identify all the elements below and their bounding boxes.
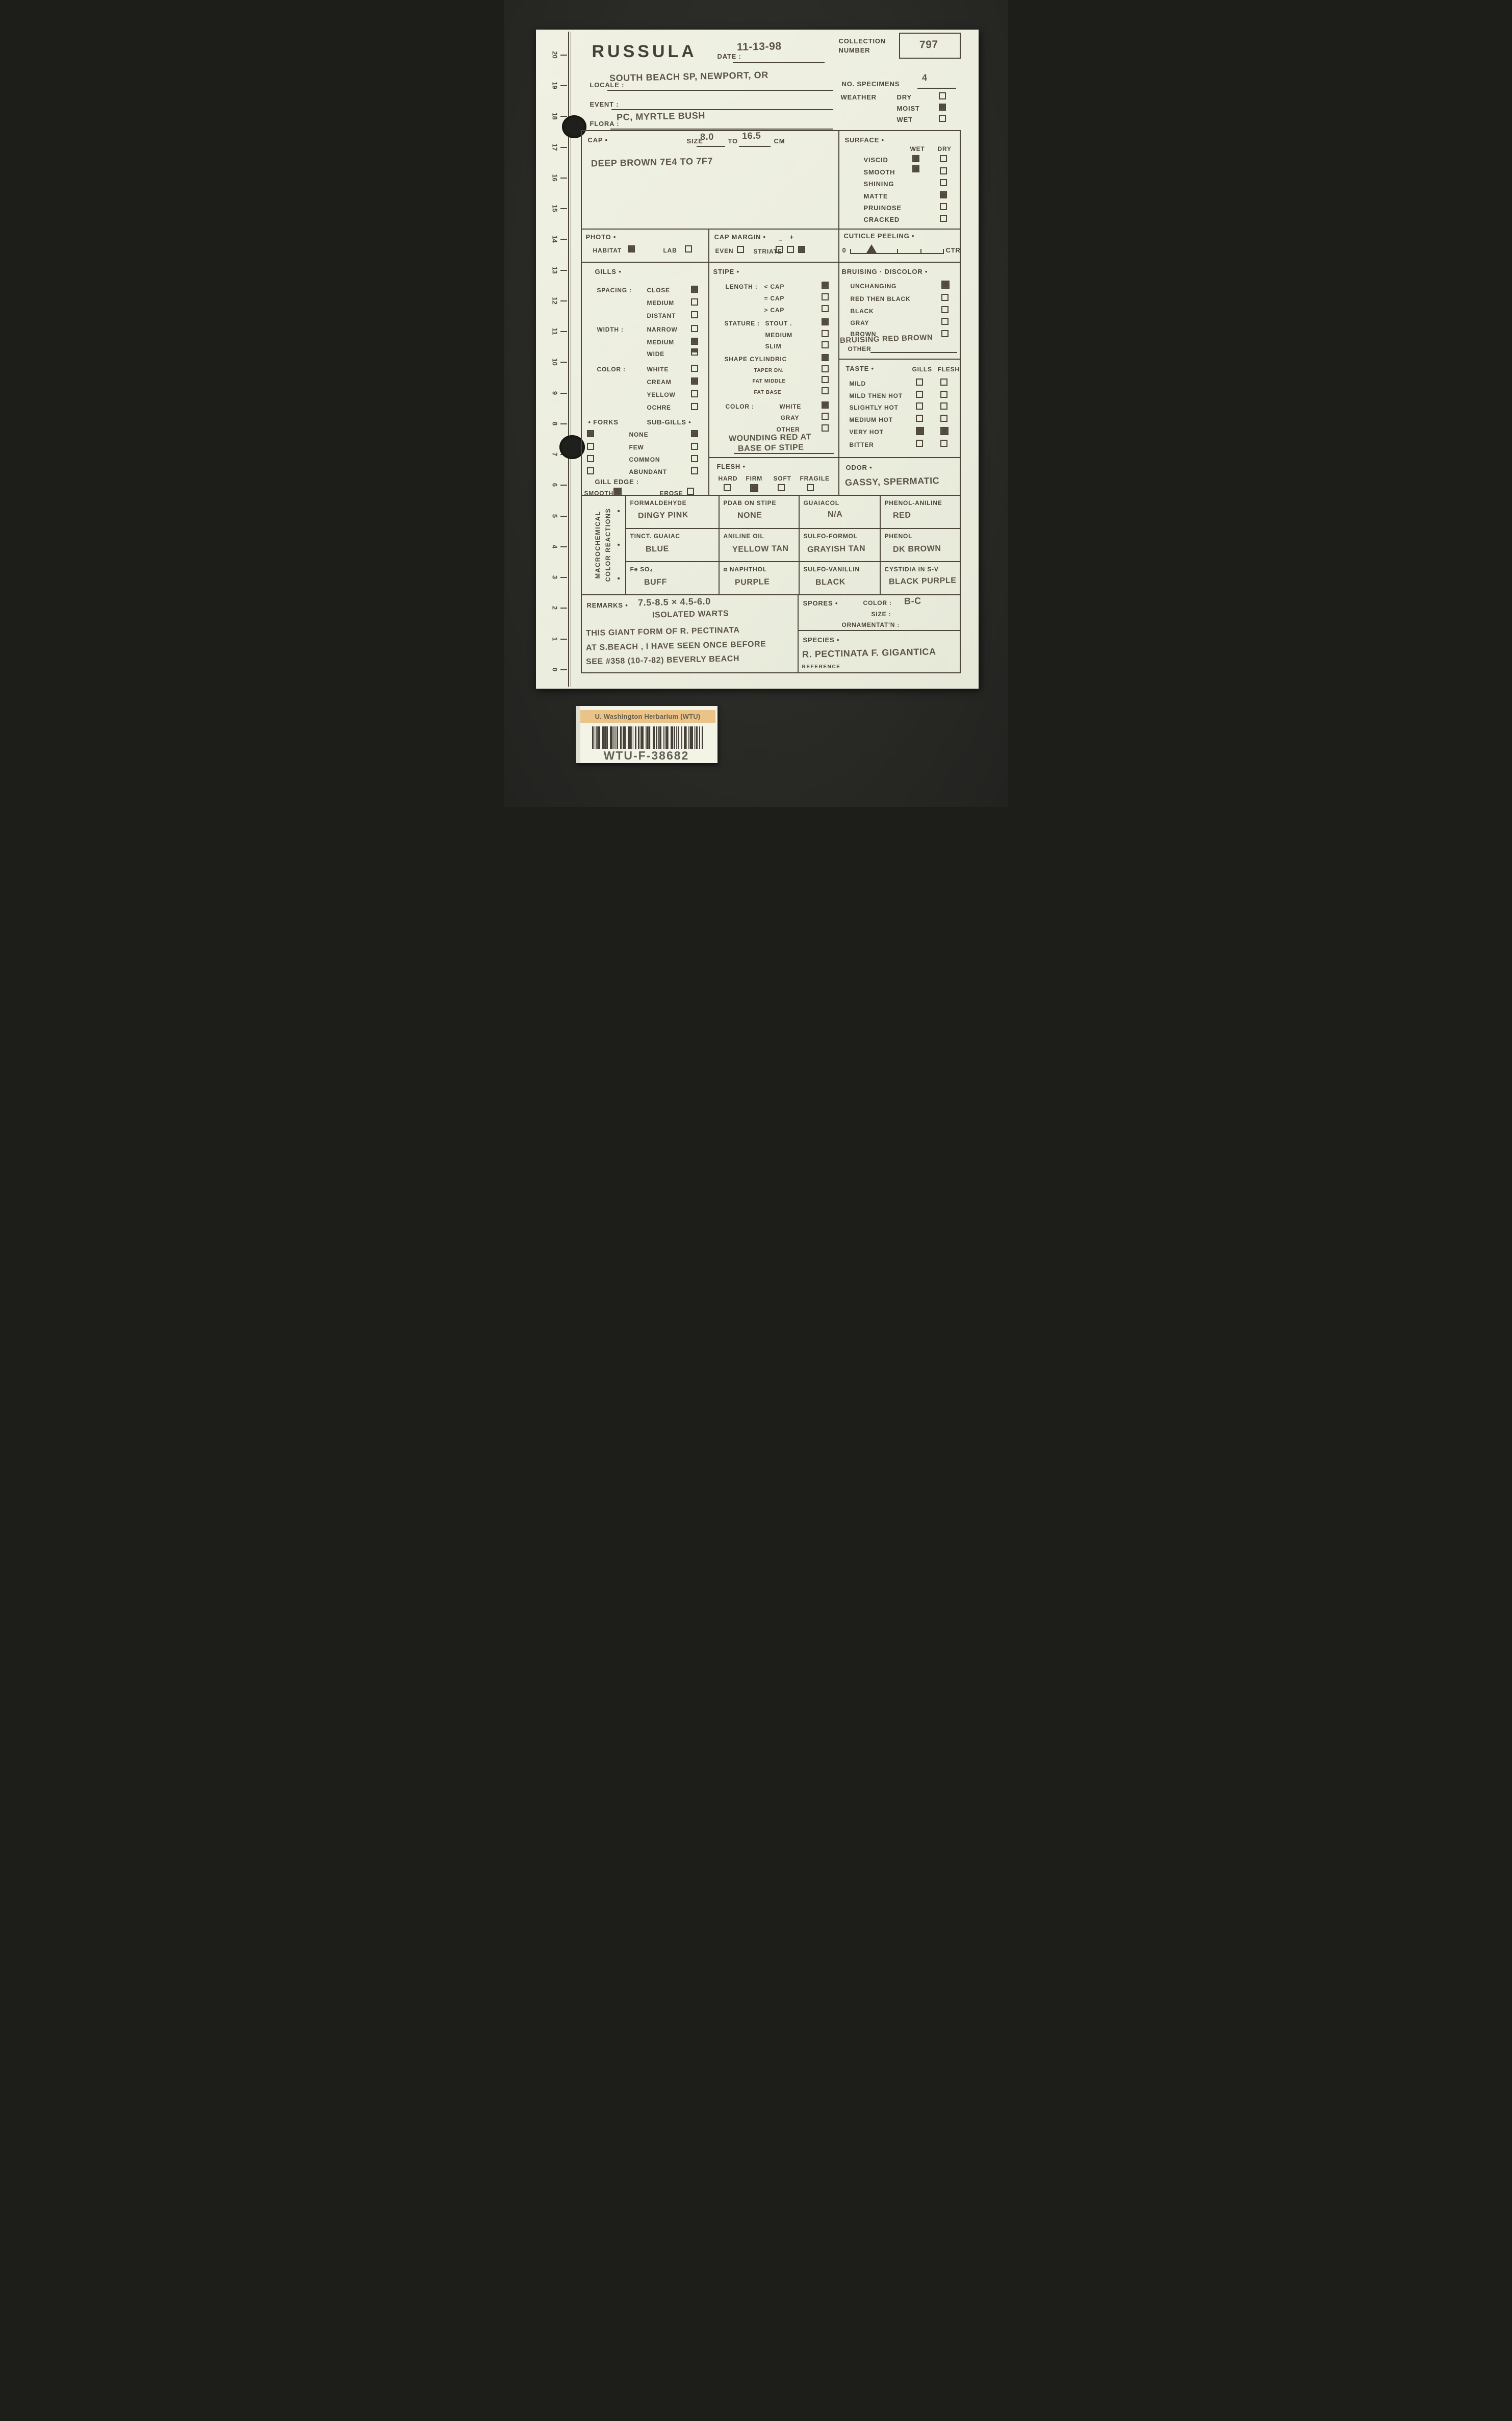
- reaction-test-label: TINCT. GUAIAC: [630, 533, 680, 540]
- gills-color-option: YELLOW: [647, 392, 676, 399]
- photo-lab-label: LAB: [663, 247, 677, 255]
- surface-row-label: CRACKED: [864, 216, 900, 224]
- grid-line: [708, 229, 709, 495]
- gills-spacing-label: SPACING :: [597, 287, 632, 294]
- barcode-number: WTU-F-38682: [576, 749, 717, 763]
- stipe-length-ltcap-checkbox: [822, 282, 829, 289]
- stipe-length-gtcap-checkbox: [822, 305, 829, 312]
- ruler-tick: [560, 300, 567, 301]
- spores-ornamentation-label: ORNAMENTAT'N :: [842, 622, 900, 629]
- ruler-number: 16: [551, 172, 558, 184]
- spores-color-value: B-C: [904, 596, 921, 607]
- ruler-tick: [560, 393, 567, 394]
- gills-width-option: MEDIUM: [647, 339, 674, 346]
- flesh-firm-checkbox: [750, 484, 758, 492]
- ruler-tick: [560, 577, 567, 578]
- ruler-tick: [560, 669, 567, 670]
- cap-margin-striate-checkbox-1: [776, 246, 783, 253]
- reaction-result: RED: [892, 511, 911, 521]
- cuticle-ctr-label: CTR: [946, 247, 961, 255]
- stipe-shape-fatmiddle-checkbox: [822, 376, 829, 383]
- ruler-number: 0: [551, 664, 558, 675]
- subgills-abundant-checkbox: [691, 467, 698, 474]
- taste-mild-gills-checkbox: [916, 379, 923, 386]
- stipe-length-option: > CAP: [764, 307, 785, 314]
- reaction-result: BLUE: [645, 545, 669, 554]
- stipe-shape-cylindric-checkbox: [822, 354, 829, 361]
- remarks-warts-note: ISOLATED WARTS: [652, 609, 729, 620]
- cap-margin-even-checkbox: [737, 246, 744, 253]
- reaction-test-label: PDAB ON STIPE: [724, 500, 777, 507]
- weather-wet-label: WET: [897, 116, 913, 124]
- cuticle-peeling-section-label: CUTICLE PEELING •: [844, 233, 915, 240]
- surface-row-label: SMOOTH: [864, 169, 895, 176]
- flesh-option-label: HARD: [719, 475, 738, 483]
- bruising-other-label: OTHER: [848, 346, 872, 353]
- gills-width-narrow-checkbox: [691, 325, 698, 332]
- grid-line: [798, 594, 799, 673]
- gills-color-cream-checkbox: [691, 377, 698, 385]
- cuticle-scale-tick: [920, 249, 921, 254]
- gills-color-yellow-checkbox: [691, 390, 698, 397]
- gills-spacing-medium-checkbox: [691, 298, 698, 306]
- reaction-test-label: α NAPHTHOL: [724, 566, 767, 573]
- reaction-test-label: GUAIACOL: [804, 500, 839, 507]
- amount-row-label: COMMON: [629, 457, 660, 464]
- no-specimens-line: [917, 80, 956, 89]
- ruler-tick: [560, 608, 567, 609]
- reaction-result: BUFF: [644, 578, 667, 588]
- reaction-result: BLACK: [815, 577, 845, 587]
- cap-size-to-label: TO: [728, 138, 738, 145]
- gill-edge-erose-label: EROSE: [660, 490, 683, 497]
- surface-row-label: PRUINOSE: [864, 205, 902, 212]
- ruler-number: 15: [551, 203, 558, 214]
- ruler-tick: [560, 270, 567, 271]
- surface-smooth-dry-checkbox: [940, 167, 947, 174]
- taste-row-label: VERY HOT: [850, 429, 884, 436]
- stipe-color-label: COLOR :: [726, 403, 754, 411]
- collection-number-value: 797: [919, 39, 938, 52]
- surface-smooth-wet-checkbox: [912, 165, 919, 172]
- ruler-tick: [560, 208, 567, 209]
- date-value: 11-13-98: [736, 40, 781, 54]
- reaction-result: PURPLE: [734, 577, 770, 587]
- cap-margin-even-label: EVEN: [715, 248, 734, 255]
- bruising-option: UNCHANGING: [851, 283, 897, 290]
- species-section-label: SPECIES •: [803, 637, 840, 644]
- taste-slightlyhot-flesh-checkbox: [940, 402, 947, 410]
- flesh-soft-checkbox: [778, 484, 785, 491]
- spores-color-label: COLOR :: [863, 600, 892, 607]
- ruler-number: 9: [551, 388, 558, 399]
- surface-viscid-wet-checkbox: [912, 155, 919, 162]
- reaction-test-label: FORMALDEHYDE: [630, 500, 687, 507]
- ruler-number: 4: [551, 541, 558, 552]
- photo-section-label: PHOTO •: [586, 234, 617, 241]
- photo-habitat-label: HABITAT: [593, 247, 622, 255]
- taste-mildthenhot-gills-checkbox: [916, 391, 923, 398]
- taste-section-label: TASTE •: [846, 365, 874, 373]
- herbarium-name: U. Washington Herbarium (WTU): [595, 713, 701, 720]
- bruising-other-line: [870, 345, 957, 353]
- ruler-number: 6: [551, 480, 558, 491]
- flesh-option-label: FRAGILE: [800, 475, 830, 483]
- photo-mat: 20 19 18 17 16 15 14 13 12 11 10 9 8 7 6…: [504, 0, 1008, 807]
- stipe-stature-slim-checkbox: [822, 341, 829, 348]
- weather-label: WEATHER: [841, 94, 877, 102]
- forks-header: • FORKS: [588, 419, 619, 426]
- cap-margin-plus: +: [790, 234, 794, 241]
- surface-row-label: SHINING: [864, 181, 894, 188]
- forks-common-checkbox: [587, 455, 594, 462]
- remarks-spore-measurement: 7.5-8.5 × 4.5-6.0: [637, 596, 710, 609]
- subgills-few-checkbox: [691, 443, 698, 450]
- grid-line: [581, 495, 961, 496]
- ruler-number: 12: [551, 295, 558, 307]
- herbarium-barcode-label: U. Washington Herbarium (WTU) WTU-F-3868…: [576, 706, 717, 763]
- surface-dry-header: DRY: [938, 146, 952, 153]
- bruising-option: GRAY: [851, 320, 869, 327]
- reaction-result: NONE: [737, 511, 762, 520]
- weather-moist-checkbox: [939, 104, 946, 111]
- reaction-test-label: PHENOL: [885, 533, 913, 540]
- cap-margin-striate-checkbox-3: [798, 246, 805, 253]
- cuticle-scale-tick: [897, 249, 898, 254]
- gills-spacing-option: MEDIUM: [647, 300, 674, 307]
- bruising-gray-checkbox: [941, 318, 949, 325]
- grid-line: [625, 561, 961, 562]
- ruler-tick: [560, 116, 567, 117]
- gills-color-option: WHITE: [647, 366, 669, 373]
- cap-margin-minus: −: [779, 237, 783, 244]
- stipe-stature-stout-checkbox: [822, 318, 829, 325]
- bruising-black-checkbox: [941, 306, 949, 313]
- stipe-color-option: WHITE: [780, 403, 802, 411]
- amount-row-label: FEW: [629, 444, 644, 451]
- reaction-test-label: ANILINE OIL: [724, 533, 764, 540]
- grid-line: [719, 495, 720, 594]
- surface-row-label: VISCID: [864, 157, 888, 164]
- bruising-brown-checkbox: [941, 330, 949, 337]
- surface-pruinose-dry-checkbox: [940, 203, 947, 210]
- grid-line: [581, 262, 961, 263]
- stipe-length-option: < CAP: [764, 284, 785, 291]
- grid-line: [625, 495, 626, 594]
- flesh-option-label: SOFT: [774, 475, 791, 483]
- bruising-option: BLACK: [851, 308, 874, 315]
- gills-spacing-distant-checkbox: [691, 311, 698, 318]
- form-title: RUSSULA: [592, 42, 697, 62]
- gills-width-wide-checkbox: [691, 348, 698, 356]
- odor-value: GASSY, SPERMATIC: [844, 475, 939, 488]
- forks-none-checkbox: [587, 430, 594, 437]
- grid-line: [799, 495, 800, 594]
- surface-cracked-dry-checkbox: [940, 215, 947, 222]
- stipe-section-label: STIPE •: [713, 268, 739, 276]
- taste-slightlyhot-gills-checkbox: [916, 402, 923, 410]
- taste-bitter-flesh-checkbox: [940, 440, 947, 447]
- flora-line: [610, 120, 833, 130]
- taste-row-label: MEDIUM HOT: [850, 417, 893, 424]
- stipe-shape-option: TAPER DN.: [754, 368, 784, 374]
- bruising-section-label: BRUISING · DISCOLOR •: [842, 268, 928, 276]
- collection-number-label: COLLECTION: [839, 38, 886, 45]
- form-grid-border: [581, 130, 961, 673]
- surface-matte-dry-checkbox: [940, 191, 947, 198]
- grid-line: [798, 630, 961, 631]
- barcode: [592, 726, 703, 749]
- reactions-bullet: •: [618, 574, 620, 583]
- herbarium-name-band: U. Washington Herbarium (WTU): [580, 710, 715, 723]
- flesh-fragile-checkbox: [807, 484, 814, 491]
- ruler-number: 18: [551, 111, 558, 122]
- stipe-stature-option: STOUT .: [765, 320, 792, 327]
- cap-margin-striate-checkbox-2: [787, 246, 794, 253]
- ruler-tick: [560, 485, 567, 486]
- gills-color-option: CREAM: [647, 379, 672, 386]
- grid-line: [581, 594, 961, 595]
- ruler-tick: [560, 55, 567, 56]
- surface-viscid-dry-checkbox: [940, 155, 947, 162]
- taste-veryhot-flesh-checkbox: [940, 427, 949, 435]
- ruler-tick: [560, 85, 567, 86]
- ruler-tick: [560, 423, 567, 424]
- ruler-tick: [560, 147, 567, 148]
- cap-size-min-line: [697, 139, 725, 147]
- stipe-stature-label: STATURE :: [725, 320, 760, 327]
- subgills-none-checkbox: [691, 430, 698, 437]
- ruler-tick: [560, 331, 567, 332]
- stipe-note-line: [734, 446, 834, 454]
- taste-row-label: BITTER: [850, 442, 874, 449]
- stipe-wounding-note-1: WOUNDING RED AT: [728, 433, 811, 443]
- gills-spacing-option: DISTANT: [647, 313, 676, 320]
- species-reference-label: REFERENCE: [802, 664, 841, 670]
- cuticle-scale-tick: [943, 249, 944, 254]
- stipe-color-white-checkbox: [822, 401, 829, 409]
- reaction-result: DINGY PINK: [637, 511, 688, 521]
- surface-shining-dry-checkbox: [940, 179, 947, 186]
- grid-line: [838, 130, 839, 495]
- gills-width-option: WIDE: [647, 351, 665, 358]
- gills-color-ochre-checkbox: [691, 403, 698, 410]
- date-line: [733, 54, 825, 63]
- gill-edge-label: GILL EDGE :: [595, 478, 639, 486]
- taste-mediumhot-flesh-checkbox: [940, 415, 947, 422]
- cuticle-scale-tick: [850, 249, 851, 254]
- ruler-number: 7: [551, 449, 558, 460]
- reaction-result: BLACK PURPLE: [888, 576, 956, 587]
- subgills-common-checkbox: [691, 455, 698, 462]
- reactions-side-label-line1: MACROCHEMICAL: [593, 508, 603, 582]
- cuticle-zero-label: 0: [842, 247, 847, 255]
- bruising-redthenblack-checkbox: [941, 294, 949, 301]
- stipe-shape-option: CYLINDRIC: [750, 356, 787, 363]
- taste-veryhot-gills-checkbox: [916, 427, 924, 435]
- reaction-test-label: SULFO-FORMOL: [804, 533, 858, 540]
- ruler-number: 1: [551, 634, 558, 645]
- grid-line: [880, 495, 881, 594]
- forks-abundant-checkbox: [587, 467, 594, 474]
- taste-gills-header: GILLS: [912, 366, 932, 373]
- stipe-color-option: GRAY: [781, 415, 800, 422]
- ruler-number: 8: [551, 418, 558, 430]
- taste-row-label: SLIGHTLY HOT: [850, 405, 899, 412]
- taste-mildthenhot-flesh-checkbox: [940, 391, 947, 398]
- subgills-header: SUB-GILLS •: [647, 419, 691, 426]
- ruler-number: 19: [551, 80, 558, 91]
- collection-form-card: 20 19 18 17 16 15 14 13 12 11 10 9 8 7 6…: [536, 30, 979, 689]
- flesh-hard-checkbox: [724, 484, 731, 491]
- reactions-bullet: •: [618, 541, 620, 549]
- spores-size-label: SIZE :: [872, 611, 891, 618]
- stipe-color-option: OTHER: [777, 426, 800, 434]
- surface-row-label: MATTE: [864, 193, 888, 200]
- bruising-unchanging-checkbox: [941, 281, 950, 289]
- ruler-number: 14: [551, 234, 558, 245]
- no-specimens-label: NO. SPECIMENS: [842, 81, 900, 88]
- taste-row-label: MILD: [850, 381, 866, 388]
- locale-line: [607, 82, 833, 91]
- weather-dry-label: DRY: [897, 94, 912, 102]
- ruler-tick: [560, 362, 567, 363]
- ruler-number: 13: [551, 265, 558, 276]
- event-line: [611, 101, 833, 110]
- reaction-test-label: PHENOL-ANILINE: [885, 500, 942, 507]
- stipe-shape-fatbase-checkbox: [822, 387, 829, 394]
- stipe-color-gray-checkbox: [822, 413, 829, 420]
- flesh-option-label: FIRM: [746, 475, 763, 483]
- cap-size-max-line: [739, 139, 771, 147]
- bruising-option: RED THEN BLACK: [851, 296, 911, 303]
- ruler-number: 20: [551, 49, 558, 61]
- reactions-bullet: •: [618, 507, 620, 516]
- cuticle-peel-marker: [866, 244, 877, 253]
- reaction-result: YELLOW TAN: [732, 544, 788, 554]
- reaction-test-label: SULFO-VANILLIN: [804, 566, 860, 573]
- reactions-side-label-line2: COLOR REACTIONS: [603, 508, 613, 582]
- gill-edge-erose-checkbox: [687, 488, 694, 495]
- cap-size-unit: CM: [774, 138, 785, 145]
- amount-row-label: NONE: [629, 432, 649, 439]
- grid-line: [838, 359, 961, 360]
- stipe-stature-option: MEDIUM: [765, 332, 792, 339]
- stipe-shape-option: FAT BASE: [754, 390, 782, 396]
- gills-color-option: OCHRE: [647, 405, 671, 412]
- cap-section-label: CAP •: [588, 137, 608, 144]
- taste-row-label: MILD THEN HOT: [850, 393, 903, 400]
- weather-dry-checkbox: [939, 92, 946, 99]
- weather-moist-label: MOIST: [897, 105, 920, 113]
- reaction-test-label: CYSTIDIA IN S-V: [885, 566, 939, 573]
- gills-width-medium-checkbox: [691, 338, 698, 345]
- gills-spacing-option: CLOSE: [647, 287, 670, 294]
- stipe-length-option: = CAP: [764, 295, 785, 302]
- stipe-shape-label: SHAPE :: [725, 356, 752, 363]
- stipe-shape-taperdn-checkbox: [822, 365, 829, 372]
- ruler-tick: [560, 178, 567, 179]
- stipe-stature-medium-checkbox: [822, 330, 829, 337]
- ruler-number: 10: [551, 357, 558, 368]
- weather-wet-checkbox: [939, 115, 946, 122]
- gills-spacing-close-checkbox: [691, 286, 698, 293]
- stipe-color-other-checkbox: [822, 424, 829, 432]
- collection-number-label2: NUMBER: [839, 47, 870, 55]
- cap-margin-section-label: CAP MARGIN •: [714, 234, 766, 241]
- gills-width-option: NARROW: [647, 326, 678, 334]
- gills-color-label: COLOR :: [597, 366, 626, 373]
- ruler-number: 17: [551, 142, 558, 153]
- reaction-test-label: Fe SO₄: [630, 566, 653, 573]
- ruler-number: 11: [551, 326, 558, 337]
- grid-line: [708, 457, 961, 458]
- taste-flesh-header: FLESH: [938, 366, 960, 373]
- remarks-section-label: REMARKS •: [587, 602, 628, 610]
- taste-mediumhot-gills-checkbox: [916, 415, 923, 422]
- ruler-number: 5: [551, 511, 558, 522]
- spores-section-label: SPORES •: [803, 600, 838, 608]
- photo-lab-checkbox: [685, 245, 692, 253]
- gills-color-white-checkbox: [691, 365, 698, 372]
- gills-width-label: WIDTH :: [597, 326, 624, 334]
- taste-mild-flesh-checkbox: [940, 379, 947, 386]
- surface-section-label: SURFACE •: [845, 137, 884, 144]
- gills-section-label: GILLS •: [595, 268, 622, 276]
- reaction-result: GRAYISH TAN: [807, 544, 865, 554]
- amount-row-label: ABUNDANT: [629, 469, 667, 476]
- surface-wet-header: WET: [910, 146, 925, 153]
- stipe-stature-option: SLIM: [765, 343, 782, 350]
- reaction-result: N/A: [827, 510, 842, 520]
- taste-bitter-gills-checkbox: [916, 440, 923, 447]
- grid-line: [625, 528, 961, 529]
- ruler-tick: [560, 546, 567, 547]
- stipe-shape-option: FAT MIDDLE: [753, 379, 786, 385]
- photo-habitat-checkbox: [628, 245, 635, 253]
- flesh-section-label: FLESH •: [717, 463, 746, 471]
- odor-section-label: ODOR •: [846, 464, 873, 472]
- ruler-number: 2: [551, 602, 558, 614]
- ruler-tick: [560, 516, 567, 517]
- ruler-tick: [560, 239, 567, 240]
- ruler-number: 3: [551, 572, 558, 583]
- grid-line: [581, 229, 961, 230]
- forks-few-checkbox: [587, 443, 594, 450]
- ruler-tick: [560, 639, 567, 640]
- stipe-length-eqcap-checkbox: [822, 293, 829, 300]
- stipe-length-label: LENGTH :: [726, 284, 758, 291]
- reaction-result: DK BROWN: [892, 544, 941, 554]
